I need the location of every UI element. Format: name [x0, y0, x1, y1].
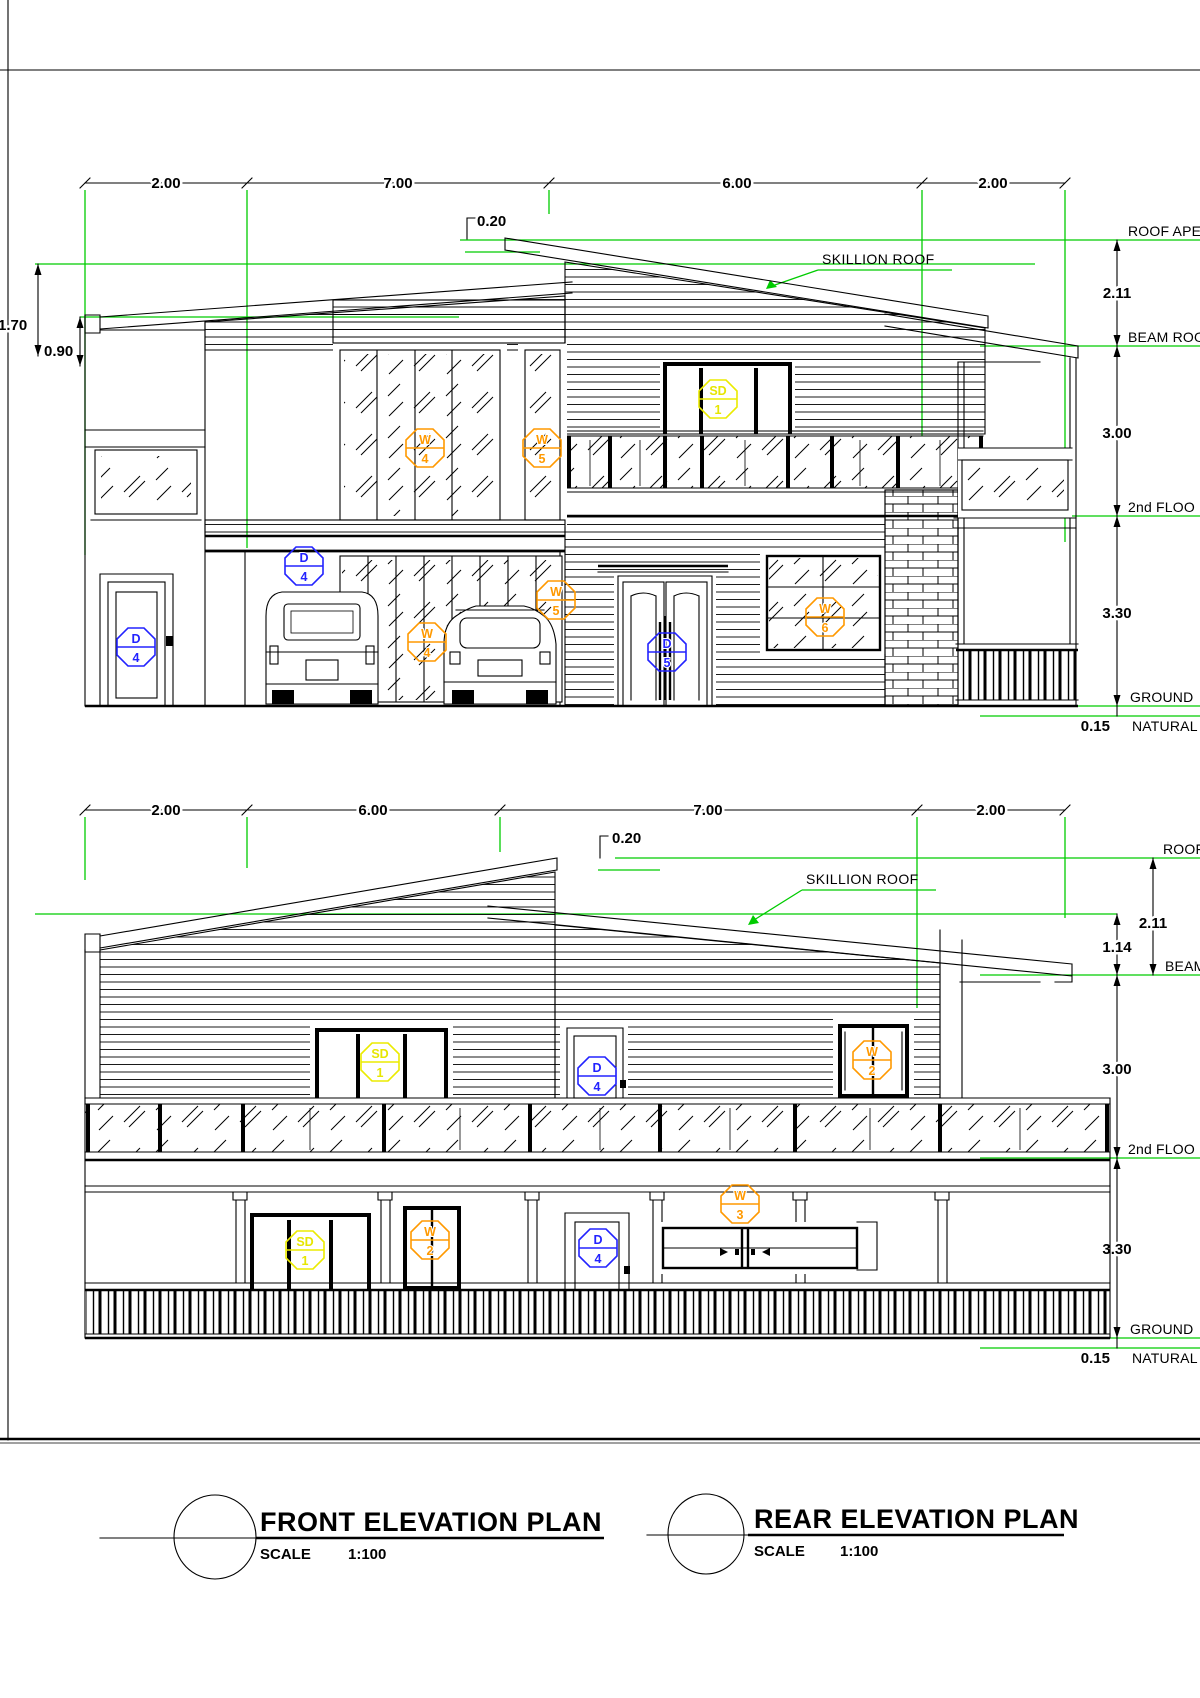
svg-text:4: 4	[424, 646, 431, 660]
svg-text:D: D	[299, 551, 308, 565]
svg-text:4: 4	[594, 1080, 601, 1094]
door-knob	[166, 636, 173, 646]
rear-level-natural: NATURAL	[1132, 1350, 1198, 1366]
vehicle-van	[266, 592, 378, 704]
front-level-ground: GROUND	[1130, 689, 1193, 705]
svg-text:4: 4	[301, 570, 308, 584]
rear-title: REAR ELEVATION PLAN	[754, 1504, 1079, 1534]
door-tag-d4-garage: D4	[285, 547, 323, 585]
front-skillion-label: SKILLION ROOF	[822, 251, 935, 267]
rear-scale-label: SCALE	[754, 1543, 805, 1560]
front-roof-thickness-dim: 0.20	[465, 213, 540, 252]
front-level-roof-apex: ROOF APE	[1128, 223, 1200, 239]
svg-text:4: 4	[422, 452, 429, 466]
front-balcony-railing	[567, 431, 983, 488]
front-skillion-callout: SKILLION ROOF	[766, 251, 952, 289]
svg-text:5: 5	[553, 604, 560, 618]
front-left-slab-band	[205, 536, 565, 551]
front-porch-window	[954, 448, 1076, 542]
rear-title-bubble	[668, 1494, 744, 1574]
front-level-second-floor: 2nd FLOO	[1128, 499, 1195, 515]
svg-text:5: 5	[539, 452, 546, 466]
rear-level-ground: GROUND	[1130, 1321, 1193, 1337]
rear-lower-sliding-door	[247, 1208, 373, 1290]
svg-text:1: 1	[377, 1066, 384, 1080]
front-title-bubble	[174, 1495, 256, 1579]
window-tag-w5-upper: W5	[523, 429, 561, 467]
rear-roof-thickness-dim: 0.20	[598, 830, 660, 870]
front-scale-label: SCALE	[260, 1546, 311, 1563]
front-balcony-sliding-door	[660, 360, 795, 436]
front-elevation-drawing: 2.00 7.00 6.00 2.00 0.20 ROOF APE BEAM R…	[0, 175, 1200, 735]
svg-text:SD: SD	[371, 1047, 388, 1061]
front-left-dimensions: 1.70 0.90	[0, 264, 84, 366]
dim-rear-2m-right: 2.00	[976, 802, 1005, 819]
rear-wide-window	[657, 1222, 883, 1274]
door-tag-d4-upper: D4	[578, 1057, 616, 1095]
svg-text:W: W	[421, 627, 433, 641]
front-porch-railing	[956, 644, 1078, 700]
rear-level-roof-apex: ROOF	[1163, 841, 1200, 857]
rear-bottom-railing	[85, 1283, 1110, 1334]
svg-text:2: 2	[869, 1064, 876, 1078]
window-tag-w6-sixpane: W6	[806, 598, 844, 636]
door-tag-d4-lower: D4	[579, 1229, 617, 1267]
window-tag-w4-garage: W4	[408, 623, 446, 661]
rear-elevation-drawing: 2.00 6.00 7.00 2.00 0.20 ROOF BEAM 2nd F…	[35, 802, 1200, 1367]
svg-text:W: W	[819, 602, 831, 616]
window-tag-w2-lower: W2	[411, 1221, 449, 1259]
window-tag-w3: W3	[721, 1185, 759, 1223]
dim-rear-0-15: 0.15	[1081, 1350, 1110, 1367]
dim-rear-2-11: 2.11	[1139, 915, 1167, 932]
front-garage	[205, 551, 565, 706]
window-tag-w4-upper: W4	[406, 429, 444, 467]
svg-text:D: D	[593, 1233, 602, 1247]
dim-rear-3-00: 3.00	[1102, 1061, 1131, 1078]
svg-text:5: 5	[664, 656, 671, 670]
dim-rear-7m: 7.00	[693, 802, 722, 819]
svg-text:1: 1	[302, 1254, 309, 1268]
svg-text:D: D	[662, 637, 671, 651]
svg-text:6: 6	[822, 621, 829, 635]
front-siding-above-glazing	[333, 300, 565, 343]
dim-front-3-30: 3.30	[1102, 605, 1131, 622]
window-tag-w2-upper: W2	[853, 1041, 891, 1079]
rear-skillion-label: SKILLION ROOF	[806, 871, 919, 887]
svg-text:4: 4	[595, 1252, 602, 1266]
svg-text:D: D	[592, 1061, 601, 1075]
front-right-dimensions: 2.11 3.00 3.30 0.15	[1081, 240, 1132, 735]
front-title: FRONT ELEVATION PLAN	[260, 1507, 602, 1537]
dim-front-2m-right: 2.00	[978, 175, 1007, 192]
svg-text:W: W	[734, 1189, 746, 1203]
rear-level-beam-roof: BEAM	[1165, 958, 1200, 974]
front-title-block: FRONT ELEVATION PLAN SCALE 1:100	[100, 1495, 604, 1579]
front-scale-value: 1:100	[348, 1546, 386, 1563]
sliding-door-tag-sd1-balcony: SD1	[699, 380, 737, 418]
front-level-natural: NATURAL	[1132, 718, 1198, 734]
front-brick-pier	[885, 490, 958, 706]
svg-text:W: W	[866, 1045, 878, 1059]
rear-scale-value: 1:100	[840, 1543, 878, 1560]
svg-text:SD: SD	[296, 1235, 313, 1249]
dim-rear-3-30: 3.30	[1102, 1241, 1131, 1258]
dim-rear-6m: 6.00	[358, 802, 387, 819]
door-tag-d4-left: D4	[117, 628, 155, 666]
dim-front-7m: 7.00	[383, 175, 412, 192]
rear-balcony-railing	[85, 1098, 1110, 1160]
sliding-door-tag-sd1-lower: SD1	[286, 1231, 324, 1269]
door-tag-d5-entry: D5	[648, 633, 686, 671]
dim-front-2m-left: 2.00	[151, 175, 180, 192]
svg-text:4: 4	[133, 651, 140, 665]
svg-text:1: 1	[715, 403, 722, 417]
svg-text:W: W	[550, 585, 562, 599]
dim-front-2-11: 2.11	[1103, 285, 1131, 302]
window-tag-w5-garage: W5	[537, 581, 575, 619]
front-left-wing-glazing	[333, 300, 567, 527]
svg-text:D: D	[131, 632, 140, 646]
dim-front-0-15: 0.15	[1081, 718, 1110, 735]
dim-front-0-90: 0.90	[44, 343, 73, 360]
svg-text:2: 2	[427, 1244, 434, 1258]
dim-front-roof-thickness: 0.20	[477, 213, 506, 230]
elevation-sheet: 2.00 7.00 6.00 2.00 0.20 ROOF APE BEAM R…	[0, 0, 1200, 1698]
dim-rear-1-14: 1.14	[1102, 939, 1132, 956]
svg-text:W: W	[424, 1225, 436, 1239]
front-level-beam-roof: BEAM ROO	[1128, 329, 1200, 345]
dim-rear-2m-left: 2.00	[151, 802, 180, 819]
dim-front-1-70: 1.70	[0, 317, 27, 334]
rear-title-block: REAR ELEVATION PLAN SCALE 1:100	[647, 1494, 1079, 1574]
rear-skillion-callout: SKILLION ROOF	[748, 871, 936, 925]
sliding-door-tag-sd1-upper: SD1	[361, 1043, 399, 1081]
svg-text:W: W	[536, 433, 548, 447]
svg-text:SD: SD	[709, 384, 726, 398]
svg-text:3: 3	[737, 1208, 744, 1222]
front-band-below-glazing	[205, 520, 565, 536]
rear-level-second-floor: 2nd FLOO	[1128, 1141, 1195, 1157]
rear-wall-column	[940, 930, 962, 1098]
svg-text:W: W	[419, 433, 431, 447]
rear-porch-floor-slab	[85, 1186, 1110, 1192]
dim-front-3-00: 3.00	[1102, 425, 1131, 442]
dim-front-6m: 6.00	[722, 175, 751, 192]
front-left-tower-window	[85, 430, 205, 520]
dim-rear-roof-thickness: 0.20	[612, 830, 641, 847]
vehicle-suv	[444, 606, 556, 704]
